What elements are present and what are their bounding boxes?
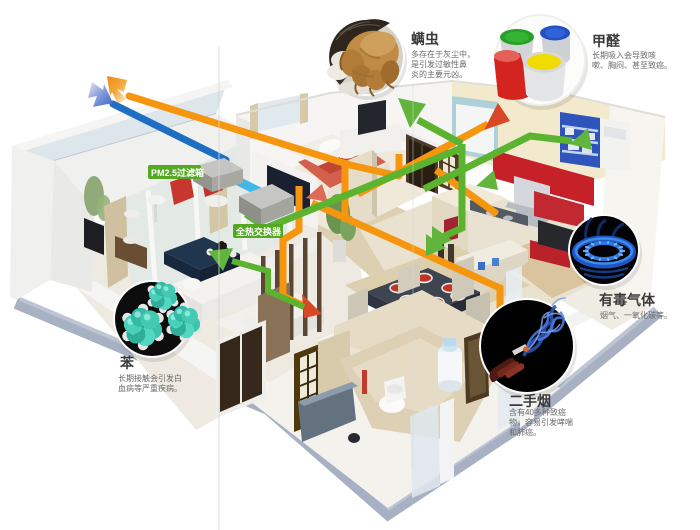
svg-text:有毒气体: 有毒气体 xyxy=(599,292,656,308)
svg-text:甲醛: 甲醛 xyxy=(592,33,621,49)
svg-text:嗽、胸闷、甚至致癌。: 嗽、胸闷、甚至致癌。 xyxy=(592,60,672,70)
svg-text:苯: 苯 xyxy=(119,355,135,371)
svg-text:多存在于灰尘中，: 多存在于灰尘中， xyxy=(411,49,475,59)
svg-text:血病等严重疾病。: 血病等严重疾病。 xyxy=(118,383,182,393)
svg-text:和肺癌。: 和肺癌。 xyxy=(509,427,541,437)
svg-text:长期接触会引发白: 长期接触会引发白 xyxy=(118,373,182,383)
svg-text:PM2.5过滤箱: PM2.5过滤箱 xyxy=(151,167,204,178)
svg-text:烟气、一氧化碳等。: 烟气、一氧化碳等。 xyxy=(600,310,672,320)
svg-text:长期吸入会导致咳: 长期吸入会导致咳 xyxy=(592,50,656,60)
svg-text:螨虫: 螨虫 xyxy=(411,31,439,47)
svg-text:含有40多种致癌: 含有40多种致癌 xyxy=(509,407,566,417)
svg-text:物，容易引发哮喘: 物，容易引发哮喘 xyxy=(509,417,573,427)
svg-text:是引发过敏性鼻: 是引发过敏性鼻 xyxy=(411,59,467,69)
svg-text:炎的主要元凶。: 炎的主要元凶。 xyxy=(411,69,467,79)
svg-text:二手烟: 二手烟 xyxy=(509,393,551,409)
svg-text:全热交换器: 全热交换器 xyxy=(235,226,282,237)
